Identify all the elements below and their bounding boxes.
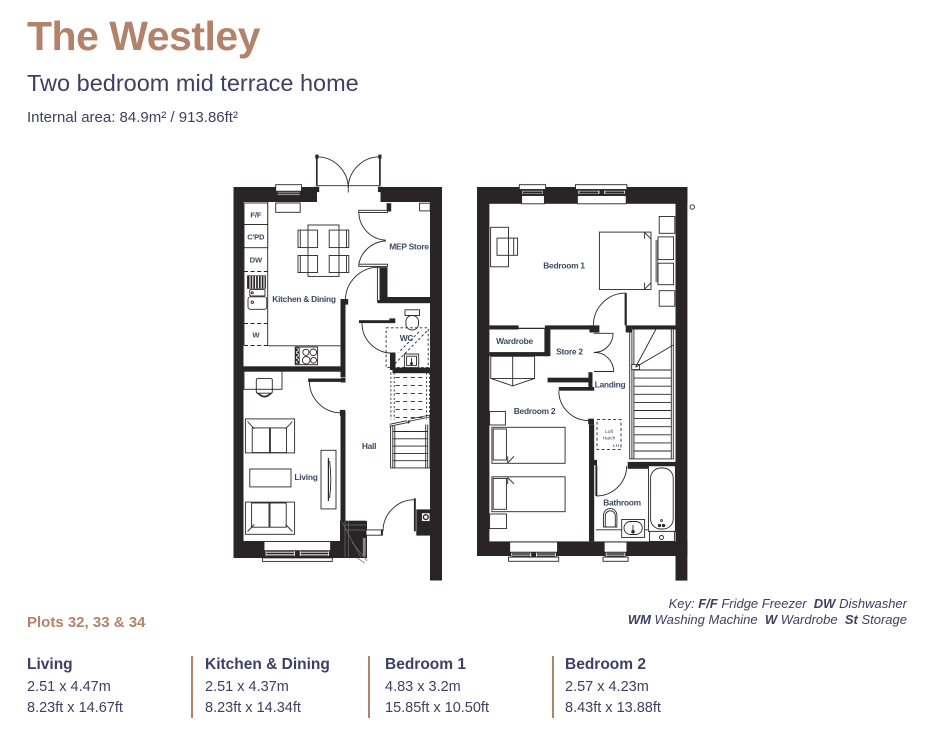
svg-text:WC: WC (400, 333, 414, 343)
svg-text:DW: DW (250, 256, 263, 265)
svg-text:Living: Living (294, 472, 317, 482)
svg-text:Bedroom 2: Bedroom 2 (514, 406, 556, 416)
svg-text:Hatch: Hatch (603, 436, 616, 442)
svg-text:Bedroom 1: Bedroom 1 (543, 261, 585, 271)
svg-text:MEP Store: MEP Store (389, 242, 429, 252)
svg-text:LH: LH (613, 443, 620, 449)
svg-text:Landing: Landing (595, 379, 626, 389)
svg-text:Loft: Loft (605, 429, 614, 435)
svg-text:C'PD: C'PD (247, 233, 265, 242)
svg-text:W: W (252, 331, 260, 340)
svg-text:F/F: F/F (250, 211, 261, 220)
svg-text:Bathroom: Bathroom (603, 498, 641, 508)
svg-text:Store 2: Store 2 (556, 347, 583, 357)
svg-text:Kitchen & Dining: Kitchen & Dining (272, 294, 336, 304)
svg-text:Wardrobe: Wardrobe (496, 336, 533, 346)
svg-text:Hall: Hall (362, 441, 376, 451)
